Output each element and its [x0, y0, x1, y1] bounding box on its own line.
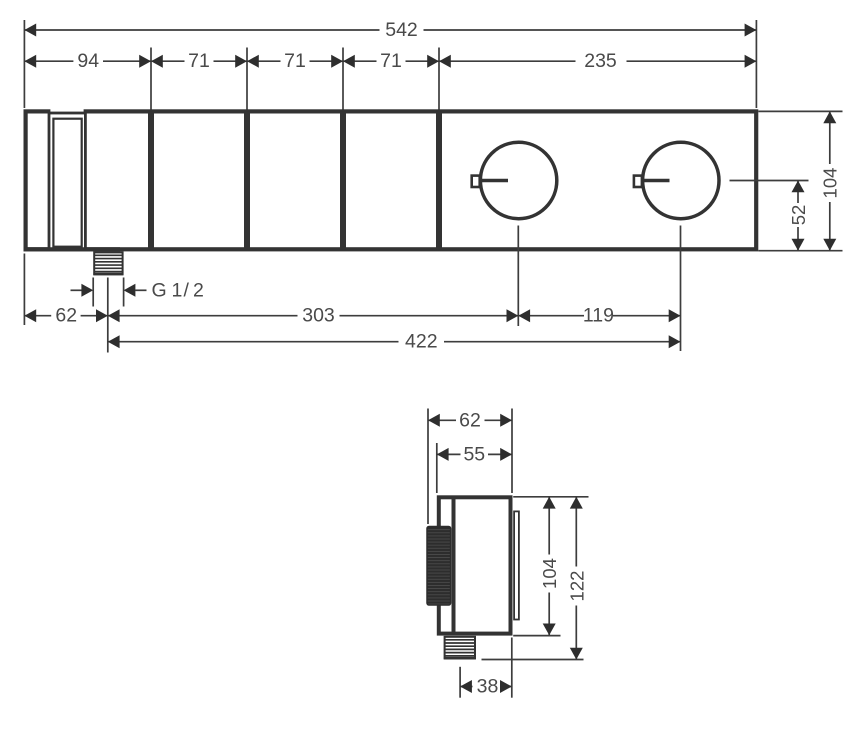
svg-text:62: 62 — [55, 305, 77, 327]
svg-text:71: 71 — [284, 50, 306, 72]
svg-text:71: 71 — [380, 50, 402, 72]
svg-text:71: 71 — [188, 50, 210, 72]
svg-text:38: 38 — [477, 676, 499, 698]
svg-text:122: 122 — [566, 571, 587, 602]
svg-text:62: 62 — [459, 409, 481, 431]
svg-text:94: 94 — [77, 50, 99, 72]
svg-text:104: 104 — [820, 168, 841, 199]
svg-text:55: 55 — [463, 443, 485, 465]
svg-text:303: 303 — [302, 305, 335, 327]
svg-text:G1/2: G1/2 — [152, 279, 204, 301]
svg-text:52: 52 — [788, 205, 809, 226]
svg-text:422: 422 — [405, 331, 438, 353]
svg-text:104: 104 — [539, 558, 560, 589]
svg-text:119: 119 — [583, 305, 614, 327]
svg-text:235: 235 — [584, 50, 617, 72]
svg-text:542: 542 — [385, 19, 418, 41]
